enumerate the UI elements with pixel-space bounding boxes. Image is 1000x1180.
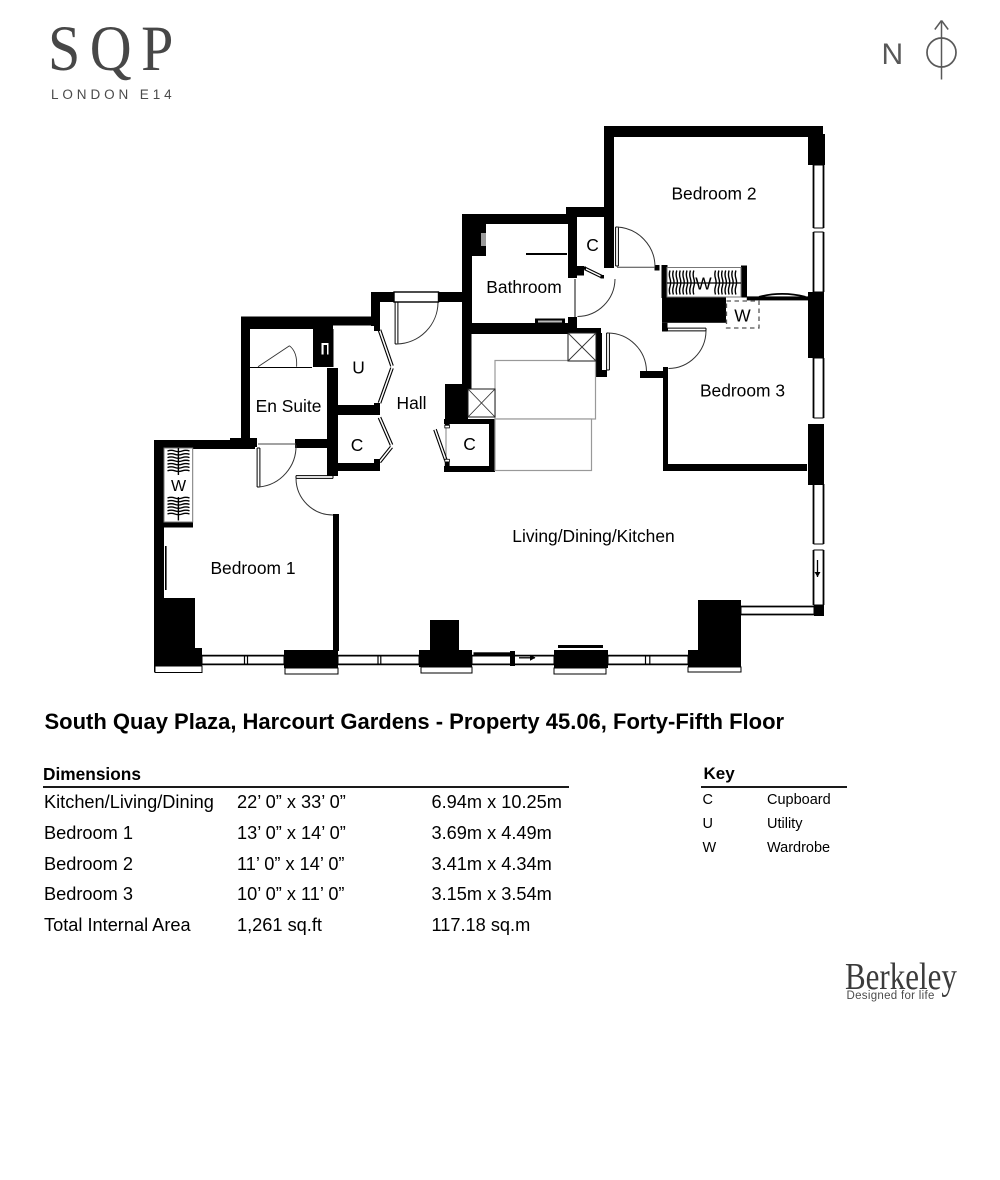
svg-text:En Suite: En Suite [256,396,322,416]
svg-text:C: C [586,235,599,255]
svg-text:Bedroom 2: Bedroom 2 [671,184,756,204]
svg-text:C: C [351,435,364,455]
svg-text:Hall: Hall [397,393,427,413]
svg-text:Living/Dining/Kitchen: Living/Dining/Kitchen [512,526,674,546]
svg-text:SQP: SQP [48,13,183,85]
svg-text:W: W [171,478,187,495]
svg-text:Bathroom: Bathroom [486,277,561,297]
svg-text:W: W [695,274,712,294]
svg-text:W: W [734,306,751,326]
svg-text:Bedroom 3: Bedroom 3 [700,381,785,401]
svg-text:Bedroom 1: Bedroom 1 [210,558,295,578]
svg-text:N: N [882,38,904,71]
svg-text:U: U [352,358,365,378]
svg-text:C: C [463,434,476,454]
